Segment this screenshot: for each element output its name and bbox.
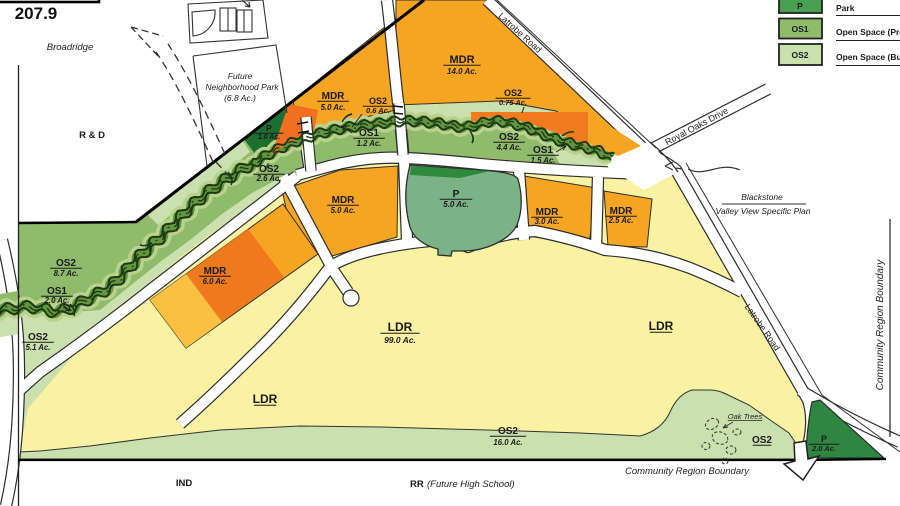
svg-text:P: P	[266, 123, 272, 133]
svg-text:MDR: MDR	[322, 91, 346, 102]
svg-text:1.2 Ac.: 1.2 Ac.	[357, 139, 382, 148]
svg-text:Blackstone: Blackstone	[741, 192, 783, 202]
svg-text:Broadridge: Broadridge	[47, 42, 93, 53]
svg-text:OS2: OS2	[56, 258, 76, 269]
svg-text:6.0 Ac.: 6.0 Ac.	[203, 277, 228, 286]
svg-text:MDR: MDR	[449, 54, 474, 66]
svg-text:Park: Park	[836, 3, 855, 13]
svg-text:OS1: OS1	[791, 24, 808, 34]
svg-text:207.9: 207.9	[15, 4, 58, 23]
svg-text:OS2: OS2	[499, 132, 519, 143]
svg-text:5.0 Ac.: 5.0 Ac.	[331, 206, 356, 215]
svg-text:1.5 Ac.: 1.5 Ac.	[531, 156, 556, 165]
svg-text:MDR: MDR	[204, 266, 228, 277]
svg-text:Open Space (Preserved): Open Space (Preserved)	[836, 27, 900, 37]
svg-text:2.0 Ac.: 2.0 Ac.	[44, 296, 70, 305]
svg-text:P: P	[452, 188, 459, 200]
svg-text:OS2: OS2	[752, 435, 772, 446]
svg-text:P: P	[797, 1, 803, 11]
svg-text:2.5 Ac.: 2.5 Ac.	[608, 216, 634, 225]
svg-text:P: P	[821, 434, 827, 444]
svg-text:OS2: OS2	[498, 426, 518, 437]
svg-text:3.0 Ac.: 3.0 Ac.	[535, 217, 560, 226]
svg-text:Community Region Boundary: Community Region Boundary	[625, 466, 750, 477]
svg-text:14.0 Ac.: 14.0 Ac.	[447, 67, 477, 76]
svg-text:OS2: OS2	[504, 88, 522, 98]
svg-text:5.0 Ac.: 5.0 Ac.	[321, 103, 346, 112]
svg-text:5.0 Ac.: 5.0 Ac.	[443, 200, 469, 209]
svg-text:OS2: OS2	[791, 50, 808, 60]
svg-text:8.7 Ac.: 8.7 Ac.	[54, 269, 79, 278]
svg-text:99.0 Ac.: 99.0 Ac.	[384, 335, 416, 345]
svg-text:1.0 Ac.: 1.0 Ac.	[258, 134, 280, 141]
svg-text:(6.8 Ac.): (6.8 Ac.)	[224, 93, 256, 103]
svg-text:2.6 Ac.: 2.6 Ac.	[256, 174, 282, 183]
svg-text:LDR: LDR	[388, 320, 413, 334]
svg-text:OS1: OS1	[533, 145, 553, 156]
svg-text:OS2: OS2	[369, 96, 387, 106]
svg-text:16.0 Ac.: 16.0 Ac.	[493, 438, 522, 447]
svg-text:5.1 Ac.: 5.1 Ac.	[26, 343, 51, 352]
svg-text:RR: RR	[410, 479, 424, 490]
svg-text:OS1: OS1	[359, 128, 379, 139]
svg-text:Future: Future	[228, 71, 253, 81]
svg-text:MDR: MDR	[332, 195, 356, 206]
svg-text:0.75 Ac.: 0.75 Ac.	[499, 98, 527, 107]
svg-text:Neighborhood Park: Neighborhood Park	[205, 82, 279, 92]
svg-text:Oak Trees: Oak Trees	[728, 412, 763, 421]
svg-text:Open Space (Buffer): Open Space (Buffer)	[836, 52, 900, 62]
svg-text:2.0 Ac.: 2.0 Ac.	[811, 444, 836, 453]
svg-text:Community Region Boundary: Community Region Boundary	[875, 259, 886, 391]
svg-text:Valley View Specific Plan: Valley View Specific Plan	[716, 206, 811, 216]
svg-text:LDR: LDR	[649, 319, 674, 333]
svg-text:0.6 Ac.: 0.6 Ac.	[366, 106, 390, 115]
svg-text:R & D: R & D	[79, 130, 105, 141]
svg-text:LDR: LDR	[253, 392, 278, 406]
svg-text:OS2: OS2	[28, 332, 48, 343]
svg-text:4.4 Ac.: 4.4 Ac.	[496, 143, 522, 152]
svg-text:IND: IND	[176, 478, 193, 489]
svg-text:(Future High School): (Future High School)	[427, 479, 515, 490]
